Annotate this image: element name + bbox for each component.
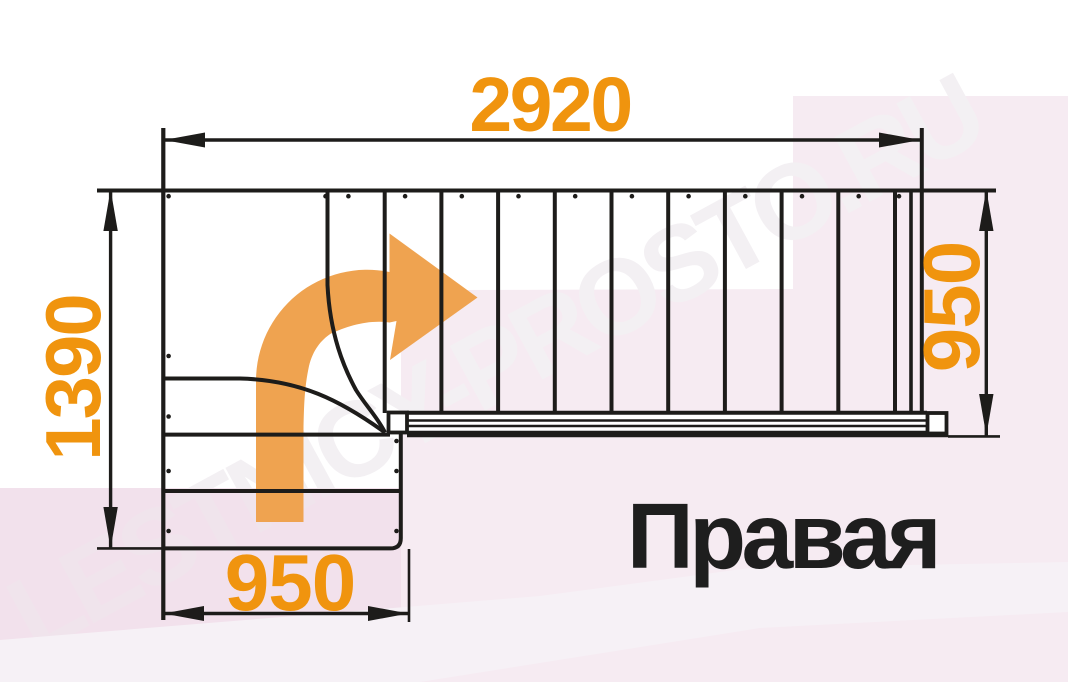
svg-text:2920: 2920 (469, 62, 630, 148)
svg-text:950: 950 (907, 242, 996, 372)
svg-text:1390: 1390 (29, 295, 117, 461)
svg-text:950: 950 (225, 538, 355, 627)
svg-text:Правая: Правая (627, 484, 937, 588)
